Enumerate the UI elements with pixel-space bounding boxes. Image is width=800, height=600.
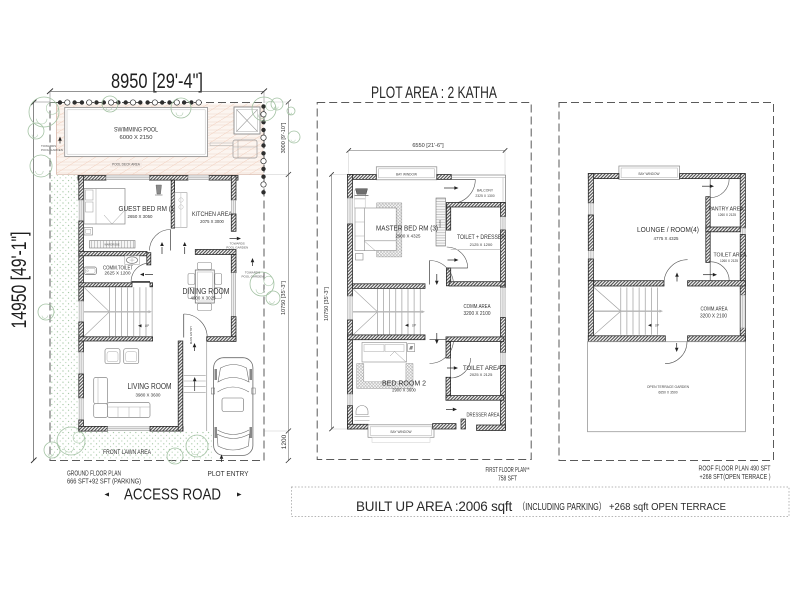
svg-text:（INCLUDING PARKING）: （INCLUDING PARKING） xyxy=(518,501,606,513)
svg-text:2900 X 4325: 2900 X 4325 xyxy=(396,234,421,239)
svg-text:OPEN TERRACE GARDEN: OPEN TERRACE GARDEN xyxy=(647,385,690,389)
svg-text:PLOT ENTRY: PLOT ENTRY xyxy=(208,471,249,478)
svg-text:BAY WINDOW: BAY WINDOW xyxy=(396,173,417,177)
svg-text:LIVING ROOM: LIVING ROOM xyxy=(128,382,172,391)
svg-text:2125 X 1200: 2125 X 1200 xyxy=(470,242,493,247)
svg-text:BAY WINDOW: BAY WINDOW xyxy=(391,430,412,434)
svg-text:DINING ROOM: DINING ROOM xyxy=(183,286,230,296)
svg-text:COMM.AREA: COMM.AREA xyxy=(701,307,728,313)
svg-text:3980 X 3600: 3980 X 3600 xyxy=(136,393,161,398)
svg-text:2650 X 3050: 2650 X 3050 xyxy=(128,214,153,219)
svg-text:UP: UP xyxy=(655,324,659,328)
svg-text:2075 X 3000: 2075 X 3000 xyxy=(200,219,224,224)
svg-text:2625 X 1200: 2625 X 1200 xyxy=(105,271,132,276)
svg-text:TOILET AREA: TOILET AREA xyxy=(714,253,747,259)
svg-text:ROOF FLOOR PLAN 490 SFT: ROOF FLOOR PLAN 490 SFT xyxy=(699,466,772,473)
svg-text:14950 [49'-1"]: 14950 [49'-1"] xyxy=(7,232,31,329)
svg-text:1260 X 2125: 1260 X 2125 xyxy=(718,213,736,217)
svg-text:10750 [35'-3"]: 10750 [35'-3"] xyxy=(281,281,287,315)
svg-text:TOILET + DRESSER: TOILET + DRESSER xyxy=(457,234,505,241)
svg-text:BED ROOM 2: BED ROOM 2 xyxy=(382,379,426,388)
svg-text:+268 sqft OPEN TERRACE: +268 sqft OPEN TERRACE xyxy=(609,502,726,513)
svg-text:6000 X 2150: 6000 X 2150 xyxy=(120,135,153,141)
svg-text:4900 X 3025: 4900 X 3025 xyxy=(191,296,216,301)
svg-text:FIRST FLOOR PLAN**: FIRST FLOOR PLAN** xyxy=(486,467,530,474)
svg-text:1260 X 2125: 1260 X 2125 xyxy=(720,259,738,263)
svg-text:POOL GARDEN: POOL GARDEN xyxy=(226,246,248,250)
svg-text:LOUNGE / ROOM(4): LOUNGE / ROOM(4) xyxy=(637,225,699,234)
svg-text:8950 [29'-4"]: 8950 [29'-4"] xyxy=(111,69,203,93)
svg-text:DRESSER AREA: DRESSER AREA xyxy=(467,413,500,419)
svg-text:6650 X 3500: 6650 X 3500 xyxy=(658,391,677,395)
svg-text:BAY WINDOW: BAY WINDOW xyxy=(639,172,660,176)
svg-text:ACCESS ROAD: ACCESS ROAD xyxy=(124,487,221,504)
svg-text:FRONT LAWN AREA: FRONT LAWN AREA xyxy=(103,450,151,456)
svg-text:DRESS: DRESS xyxy=(439,219,442,228)
svg-text:2325 X 1300: 2325 X 1300 xyxy=(475,194,494,198)
svg-text:POOL DECK AREA: POOL DECK AREA xyxy=(112,163,141,167)
svg-text:1200: 1200 xyxy=(281,434,288,449)
svg-text:GUEST BED RM (1): GUEST BED RM (1) xyxy=(119,204,177,213)
svg-text:4775 X 4325: 4775 X 4325 xyxy=(654,236,679,241)
svg-text:10750 [35'-3"]: 10750 [35'-3"] xyxy=(324,287,330,321)
svg-text:666 SFT+92 SFT (PARKING): 666 SFT+92 SFT (PARKING) xyxy=(67,477,141,486)
svg-text:3200 X 2100: 3200 X 2100 xyxy=(464,311,491,317)
svg-text:MASTER BED RM (3): MASTER BED RM (3) xyxy=(376,224,438,233)
svg-text:BUILT UP AREA :2006 sqft: BUILT UP AREA :2006 sqft xyxy=(356,499,512,514)
svg-text:3000 [9'-10"]: 3000 [9'-10"] xyxy=(281,122,287,153)
svg-text:PLOT AREA : 2 KATHA: PLOT AREA : 2 KATHA xyxy=(371,84,497,102)
svg-text:COMM.AREA: COMM.AREA xyxy=(464,304,491,310)
svg-text:POOL GARDEN: POOL GARDEN xyxy=(41,148,63,152)
svg-text:POOL GARDEN: POOL GARDEN xyxy=(242,275,264,279)
svg-text:PANTRY AREA: PANTRY AREA xyxy=(709,207,744,213)
svg-text:+268 SFT(OPEN TERRACE ): +268 SFT(OPEN TERRACE ) xyxy=(700,474,771,481)
svg-text:6550 [21'-6"]: 6550 [21'-6"] xyxy=(412,143,444,149)
svg-text:758 SFT: 758 SFT xyxy=(498,476,518,483)
svg-text:MAIN ENTRY: MAIN ENTRY xyxy=(189,326,193,344)
svg-text:SWIMMING POOL: SWIMMING POOL xyxy=(114,128,159,134)
svg-text:2900 X 3600: 2900 X 3600 xyxy=(392,388,416,393)
svg-text:UP: UP xyxy=(412,324,416,328)
svg-text:KITCHEN AREA: KITCHEN AREA xyxy=(192,211,232,218)
svg-text:TOILET AREA: TOILET AREA xyxy=(463,365,502,372)
svg-text:BALCONY: BALCONY xyxy=(477,189,494,193)
svg-text:2025 X 2125: 2025 X 2125 xyxy=(470,372,493,377)
svg-text:WARDROBE: WARDROBE xyxy=(104,243,119,247)
svg-text:3200 X 2100: 3200 X 2100 xyxy=(700,314,727,320)
svg-text:UP: UP xyxy=(145,324,149,328)
